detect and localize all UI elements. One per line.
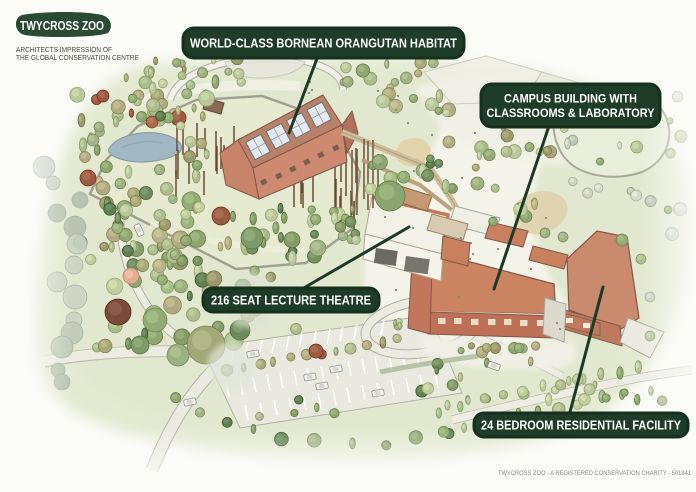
svg-text:TWYCROSS ZOO - A REGISTERED CO: TWYCROSS ZOO - A REGISTERED CONSERVATION… xyxy=(498,470,691,477)
svg-text:CLASSROOMS & LABORATORY: CLASSROOMS & LABORATORY xyxy=(487,106,655,120)
svg-text:CAMPUS BUILDING WITH: CAMPUS BUILDING WITH xyxy=(504,92,637,106)
svg-text:216 SEAT LECTURE THEATRE: 216 SEAT LECTURE THEATRE xyxy=(211,293,371,308)
svg-text:THE GLOBAL CONSERVATION CENTRE: THE GLOBAL CONSERVATION CENTRE xyxy=(16,55,139,62)
svg-text:24 BEDROOM RESIDENTIAL FACILIT: 24 BEDROOM RESIDENTIAL FACILITY xyxy=(481,418,682,432)
svg-text:TWYCROSS ZOO: TWYCROSS ZOO xyxy=(20,18,104,33)
svg-text:WORLD-CLASS BORNEAN ORANGUTAN: WORLD-CLASS BORNEAN ORANGUTAN HABITAT xyxy=(190,36,457,51)
svg-text:ARCHITECTS IMPRESSION OF: ARCHITECTS IMPRESSION OF xyxy=(16,47,112,54)
